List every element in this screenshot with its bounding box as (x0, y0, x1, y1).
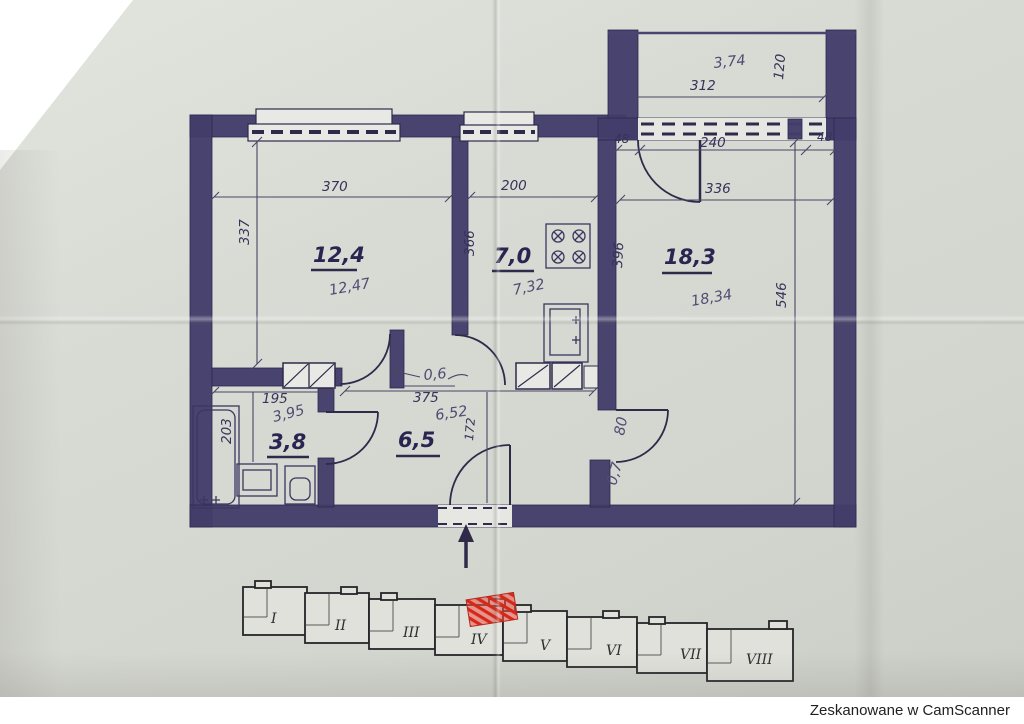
entrance-door-arc (450, 445, 510, 505)
kitchen-depth-right-dim: 396 (610, 242, 627, 269)
bathroom-depth-dim: 203 (219, 418, 235, 444)
site-label-7: VII (680, 647, 702, 663)
balcony-depth-dim: 120 (771, 53, 789, 80)
room2-pencil-area: 18,34 (690, 287, 734, 310)
room2-width-dim: 336 (705, 181, 731, 197)
balcony-window-mullion (788, 119, 802, 139)
site-label-3: III (402, 625, 420, 641)
bathroom-sink-basin (243, 470, 271, 490)
balcony-seg-right-dim: 48 (817, 130, 833, 144)
room1-width-dim: 370 (322, 179, 348, 195)
kitchen-pencil-area: 7,32 (512, 277, 547, 299)
stove-burners (552, 230, 585, 263)
room2-depth-dim: 546 (774, 282, 790, 308)
kitchen-door-arc (455, 335, 505, 385)
site-section-3 (369, 599, 435, 649)
hall-width-dim: 375 (413, 390, 439, 406)
room1-pencil-area: 12,47 (328, 276, 372, 299)
room2-door-width-note: 80 (612, 416, 631, 437)
camscanner-watermark: Zeskanowane w CamScanner (810, 702, 1010, 719)
kitchen-width-dim: 200 (501, 178, 527, 194)
kitchen-area-label: 7,0 (494, 244, 531, 268)
site-label-4: IV (470, 632, 489, 648)
kitchen-sink-taps (572, 316, 580, 344)
site-plan-strip: I II III IV V VI VII VIII (243, 581, 793, 681)
wall-bottom (190, 505, 856, 527)
room2-area-label: 18,3 (664, 245, 716, 269)
bathroom-area-label: 3,8 (269, 430, 306, 454)
windows (248, 33, 856, 527)
closet-width-note: 0,6 (423, 366, 447, 384)
kitchen-sink-basin (550, 309, 580, 355)
balcony-width-dim: 312 (690, 78, 716, 94)
room1-depth-dim: 337 (237, 219, 253, 245)
site-label-1: I (270, 611, 277, 627)
doors (326, 140, 700, 505)
site-section-6 (567, 617, 637, 667)
site-label-2: II (334, 618, 347, 634)
toilet-bowl (290, 478, 310, 500)
site-label-8: VIII (746, 652, 773, 668)
closet-hall-recess (584, 366, 598, 388)
floor-plan-drawing: 12,4 7,0 18,3 3,8 6,5 370 337 200 366 39… (0, 0, 1024, 697)
room1-area-label: 12,4 (313, 243, 365, 267)
room1-door-arc (340, 334, 390, 384)
window-room1-frame (256, 109, 392, 125)
balcony-pencil-area: 3,74 (713, 53, 747, 72)
entrance-arrow (458, 524, 474, 568)
site-label-6: VI (606, 643, 622, 659)
balcony-seg-left-dim: 48 (614, 132, 630, 146)
hall-area-label: 6,5 (398, 428, 435, 452)
kitchen-fixtures (544, 224, 590, 362)
bathroom-door-arc (326, 412, 378, 464)
scanned-floor-plan: 12,4 7,0 18,3 3,8 6,5 370 337 200 366 39… (0, 0, 1024, 724)
kitchen-depth-left-dim: 366 (462, 230, 478, 256)
wall-right (834, 118, 856, 527)
wall-hall-stub (390, 330, 404, 388)
bathroom-width-dim: 195 (262, 391, 288, 407)
balcony-door-arc (638, 140, 700, 202)
window-kitchen-frame (464, 112, 534, 126)
wall-bathroom-top (212, 368, 284, 386)
camscanner-footer: Zeskanowane w CamScanner (0, 697, 1024, 724)
wall-kitchen-right (598, 140, 616, 410)
balcony-seg-mid-dim: 240 (700, 135, 726, 151)
wall-bathroom-right-lower (318, 458, 334, 507)
hall-depth-dim: 172 (462, 417, 478, 441)
